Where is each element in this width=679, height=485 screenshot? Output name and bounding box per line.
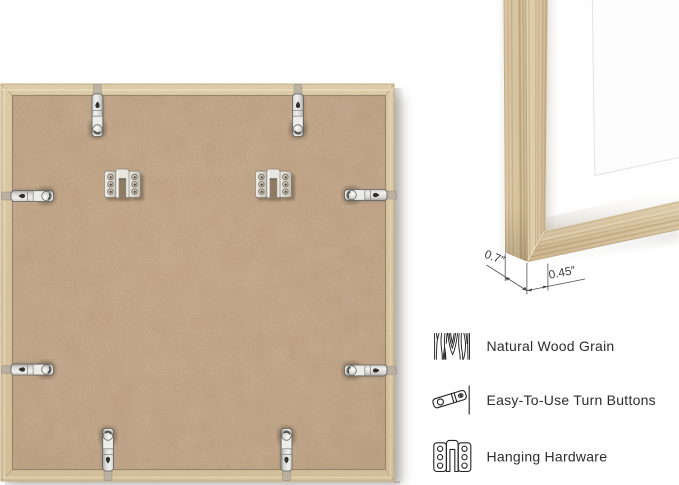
svg-text:Natural Wood Grain: Natural Wood Grain: [487, 338, 615, 354]
svg-text:Hanging Hardware: Hanging Hardware: [487, 448, 608, 464]
svg-text:Easy-To-Use Turn Buttons: Easy-To-Use Turn Buttons: [487, 392, 656, 408]
